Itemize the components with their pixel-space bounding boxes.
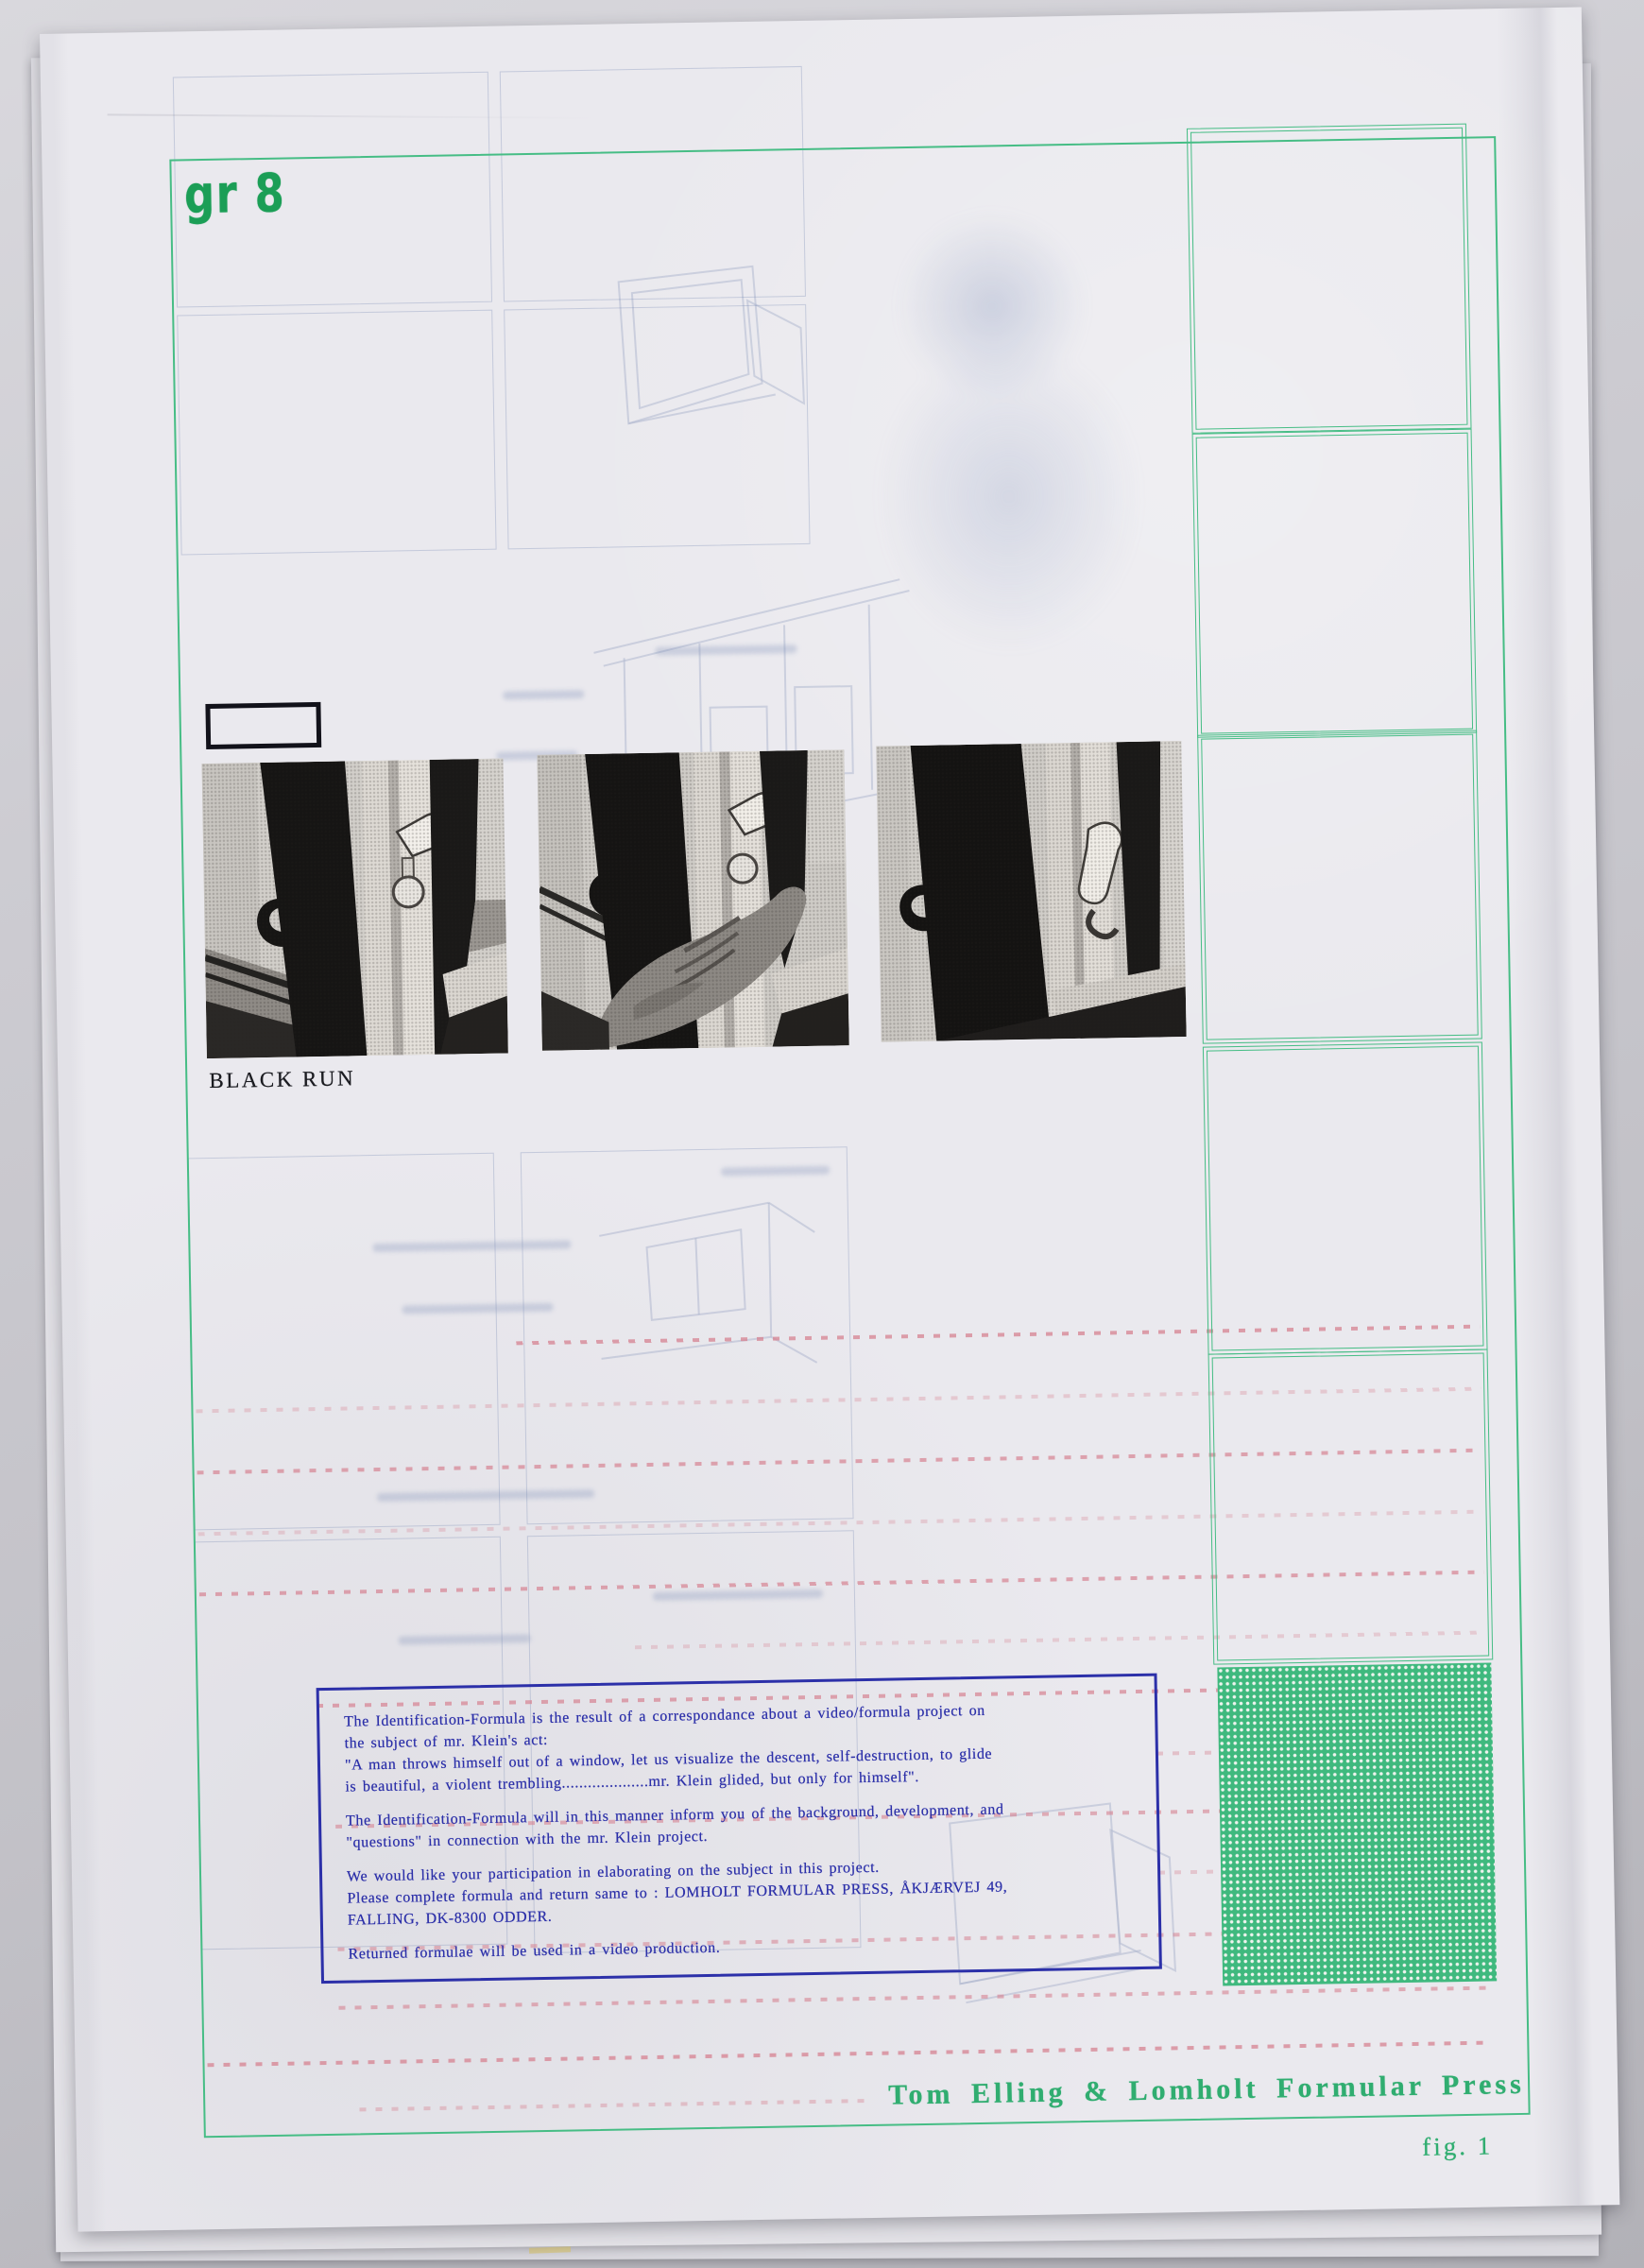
scanner-background: gr 8 [0,0,1644,2268]
photo-caption: BLACK RUN [209,1066,355,1093]
response-box-2 [1196,433,1473,734]
photo-window-handle-2 [876,741,1186,1042]
blank-label-box [205,702,321,749]
response-box-column [40,8,1582,34]
info-box: The Identification-Formula is the result… [317,1674,1162,1984]
halftone-photo-art [876,741,1186,1042]
dotted-guides-layer [40,8,1582,34]
response-box-5 [1212,1353,1490,1661]
ghost-layer [40,8,1582,34]
figure-label: fig. 1 [1422,2131,1494,2161]
response-box-1 [1190,128,1467,430]
halftone-photo-art [202,759,508,1059]
halftone-photo-art [537,749,848,1051]
halftone-filled-box [1217,1662,1497,1985]
photo-hand-on-handle [537,749,848,1051]
formular-page: gr 8 [40,8,1619,2232]
response-box-4 [1207,1046,1484,1351]
response-box-3 [1201,734,1479,1040]
photo-window-handle-1 [202,759,508,1059]
corner-mark: gr 8 [184,167,286,222]
info-box-text: The Identification-Formula is the result… [344,1697,1135,1965]
